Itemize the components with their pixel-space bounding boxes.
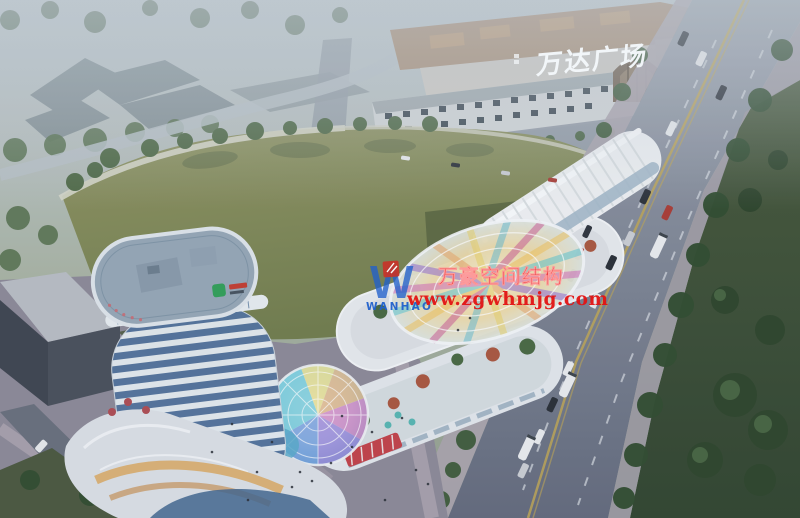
watermark-logo-emblem-icon bbox=[382, 260, 399, 277]
watermark-website: www.zgwhmjg.com bbox=[406, 289, 609, 310]
architectural-rendering: 万达广场 W WANHAO 万豪空间结构 www.zgwhmjg.com bbox=[0, 0, 800, 518]
watermark-company: 万豪空间结构 bbox=[437, 265, 564, 288]
scene-canvas: 万达广场 W WANHAO 万豪空间结构 www.zgwhmjg.com bbox=[0, 0, 800, 518]
